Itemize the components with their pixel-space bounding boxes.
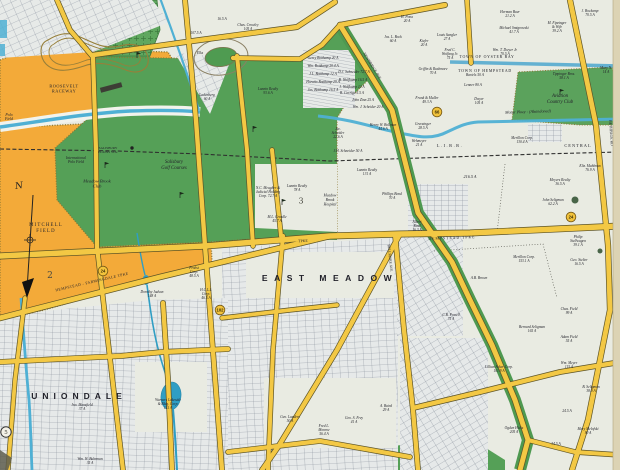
feature-label: CENTRAL bbox=[564, 143, 591, 148]
atlas-map: 107.5 AChas. Crowley105 AElksLadenberg60… bbox=[0, 0, 620, 470]
tree-grove bbox=[598, 249, 603, 254]
feature-label: TOWN OF OYSTER BAY bbox=[459, 55, 514, 59]
feature-label: EAST MEADOW bbox=[262, 273, 398, 283]
parcel-label: Horatio Bottkamp 29 A bbox=[305, 80, 340, 84]
parcel-label: Jos. Bottkamp 16.5 A bbox=[308, 88, 339, 92]
scan-margin bbox=[613, 0, 620, 470]
parcel-label: ProbstCorp.48.5 A bbox=[188, 266, 199, 278]
plate-number-text: 5 bbox=[4, 430, 8, 436]
plate-number: 3 bbox=[298, 196, 303, 205]
canal-fragment bbox=[0, 20, 7, 38]
route-shield: 66 bbox=[432, 107, 442, 117]
feature-label: TOWN OF HEMPSTEAD bbox=[458, 69, 512, 73]
parcel-label: Elks bbox=[196, 51, 204, 55]
parcel-label: Wm. Bottkamp 20.4 A bbox=[307, 64, 339, 68]
plate-number-text: 3 bbox=[298, 196, 303, 205]
route-shield-number: 66 bbox=[435, 109, 440, 114]
parcel-label: J.L. Bottkamp 12 A bbox=[309, 72, 337, 76]
feature-label: InternationalPolo Field bbox=[65, 156, 86, 164]
salisbury-plains-station-dot bbox=[130, 146, 133, 149]
tree-grove bbox=[572, 197, 579, 204]
parcel-label: B. Wolfkamp 16.5 A bbox=[339, 78, 368, 82]
parcel-label: A.B. Brown bbox=[470, 276, 488, 280]
parcel-label: 24.5 A bbox=[562, 409, 572, 413]
route-shield-number: 24 bbox=[569, 214, 574, 219]
parcel-label: B. Corriga 5.5 A bbox=[340, 91, 365, 95]
parcel-label: N.C. Meagher &Judicial HoldingCorp. 72.7… bbox=[255, 186, 280, 198]
feature-label: SALISBURYPLAINS STA. bbox=[98, 146, 118, 154]
parcel-label: D.J. Schneider 72.7 A bbox=[337, 70, 370, 74]
parcel-label: J. Wolfkamp 12 A bbox=[339, 85, 365, 89]
grid-southeast-upper bbox=[397, 236, 463, 336]
parcel-label: Bartels 50 A bbox=[466, 73, 485, 77]
canal-fragment bbox=[0, 44, 5, 56]
parcel-label: Wm. J. Scheider 20 A bbox=[353, 105, 385, 109]
parcel-label: Fred L.Monroe56.4 A bbox=[317, 424, 330, 436]
route-shield: 102 bbox=[215, 305, 225, 315]
map-canvas: 107.5 AChas. Crowley105 AElksLadenberg60… bbox=[0, 0, 620, 470]
parcel-label: John Zinn 25 A bbox=[352, 98, 375, 102]
feature-label: ROOSEVELTRACEWAY bbox=[49, 83, 78, 93]
route-shield-number: 102 bbox=[217, 307, 225, 312]
parcel-label: H.C.L.I.Corp.46.5 A bbox=[199, 288, 212, 300]
feature-label: TPKE bbox=[298, 239, 308, 244]
route-shield: 24 bbox=[98, 266, 108, 276]
feature-label: PoloField bbox=[4, 113, 13, 121]
route-shield: 24 bbox=[566, 212, 576, 222]
parcel-label: Lenner 80 A bbox=[463, 83, 483, 87]
parcel-label: 34.5 A bbox=[551, 442, 561, 446]
plate-number: 2 bbox=[47, 271, 53, 281]
parcel-label: Gerry Bottkamp 20 A bbox=[308, 56, 340, 60]
plate-number: 5 bbox=[1, 427, 11, 437]
parcel-label: 16.5 A bbox=[217, 17, 227, 21]
parcel-label: Dwyer105 A bbox=[473, 97, 484, 105]
route-shield-number: 24 bbox=[101, 268, 106, 273]
parcel-label: J.H. Schneider 50 A bbox=[334, 149, 364, 153]
feature-label: L.I.R.R. bbox=[437, 143, 463, 148]
feature-label: UNIONDALE bbox=[31, 391, 127, 401]
parcel-label: 107.5 A bbox=[190, 31, 202, 35]
plate-number-text: 2 bbox=[47, 271, 53, 281]
feature-label: SalisburyGolf Courses bbox=[161, 160, 187, 171]
grid-rail-cluster bbox=[528, 124, 562, 142]
parcel-label: 216.5 A bbox=[464, 174, 477, 179]
